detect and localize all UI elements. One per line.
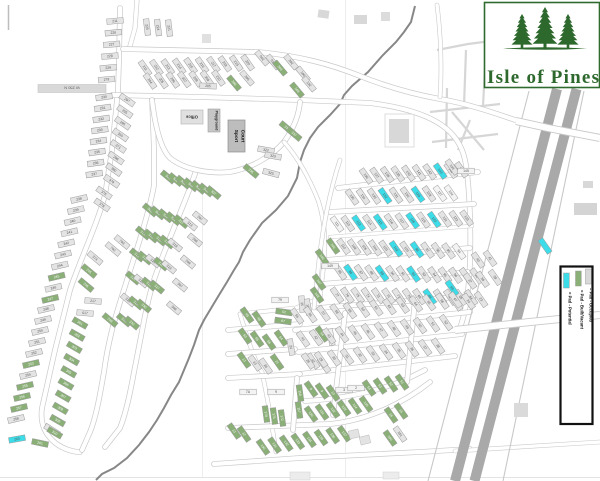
svg-text:211: 211: [112, 19, 118, 23]
svg-text:= Pad - Occupied: = Pad - Occupied: [589, 288, 594, 323]
svg-text:226: 226: [110, 31, 116, 35]
svg-text:3: 3: [343, 388, 345, 392]
svg-text:231: 231: [100, 106, 106, 111]
svg-text:149: 149: [327, 264, 333, 268]
svg-text:227: 227: [109, 42, 115, 46]
svg-text:279: 279: [104, 77, 110, 81]
svg-text:7A: 7A: [246, 390, 251, 394]
svg-text:Court: Court: [240, 130, 246, 143]
svg-text:118: 118: [298, 390, 303, 396]
svg-text:237: 237: [91, 172, 97, 177]
svg-text:117: 117: [297, 407, 302, 413]
svg-text:232: 232: [98, 117, 104, 122]
svg-text:52: 52: [282, 310, 286, 315]
svg-text:9: 9: [275, 390, 277, 394]
svg-text:Sport: Sport: [233, 130, 239, 143]
svg-text:Playground: Playground: [215, 111, 219, 131]
svg-text:229: 229: [105, 66, 111, 70]
svg-text:W 250 N: W 250 N: [64, 86, 80, 91]
svg-text:= Pad - Built/Vacant: = Pad - Built/Vacant: [580, 290, 585, 330]
svg-text:145: 145: [463, 169, 469, 173]
svg-text:230: 230: [101, 95, 107, 100]
svg-text:224: 224: [156, 24, 161, 30]
svg-text:35: 35: [300, 302, 304, 306]
svg-text:235: 235: [94, 150, 100, 155]
svg-text:= Pad - Potential: = Pad - Potential: [568, 292, 573, 325]
svg-text:234: 234: [95, 139, 101, 144]
svg-text:172: 172: [280, 415, 285, 421]
svg-text:79: 79: [278, 298, 282, 302]
svg-text:236: 236: [93, 161, 99, 166]
svg-text:221: 221: [167, 25, 172, 31]
svg-text:617: 617: [82, 311, 88, 315]
svg-text:170: 170: [264, 411, 269, 417]
svg-text:2: 2: [355, 386, 357, 390]
svg-text:Isle of Pines: Isle of Pines: [487, 67, 599, 88]
svg-text:217: 217: [90, 299, 96, 303]
svg-text:67: 67: [281, 319, 285, 324]
svg-text:228: 228: [107, 54, 113, 58]
svg-text:171: 171: [272, 413, 277, 419]
svg-text:233: 233: [97, 128, 103, 133]
svg-text:225: 225: [145, 24, 150, 30]
svg-text:Office: Office: [185, 115, 198, 120]
svg-text:285: 285: [205, 84, 211, 88]
